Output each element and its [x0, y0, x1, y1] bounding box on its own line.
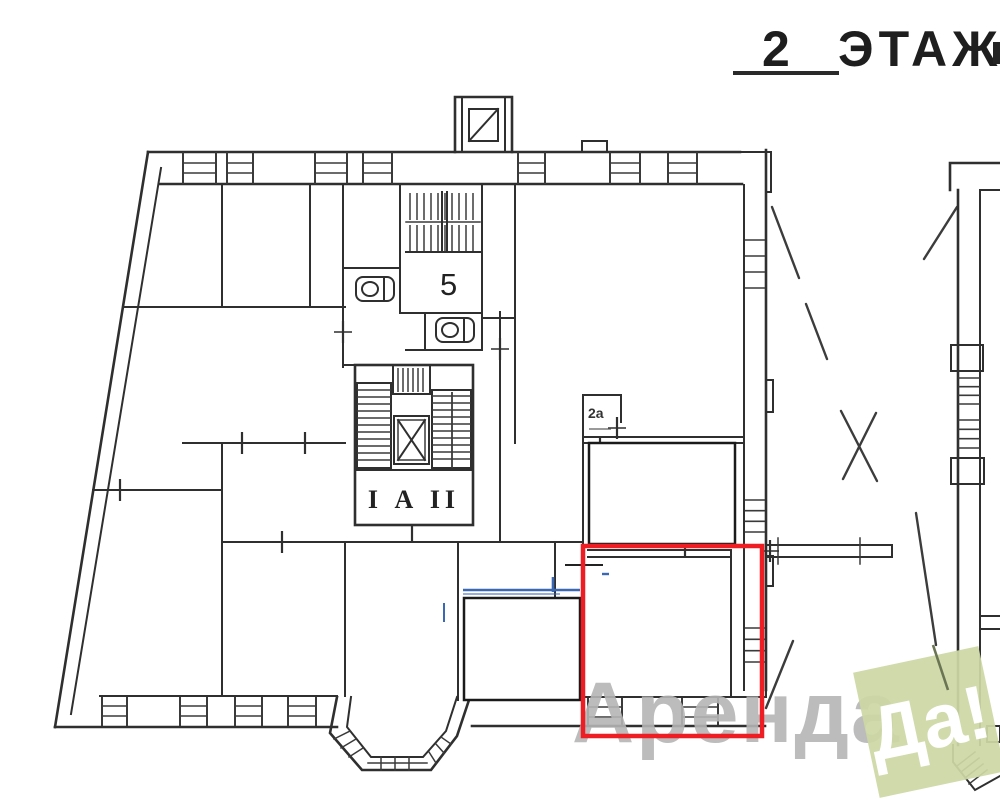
- bay-window: [330, 697, 470, 770]
- toilet-icon: [436, 318, 474, 342]
- right-wing-wall: [766, 538, 892, 564]
- floor-number-label: 2: [762, 21, 795, 77]
- floor-plan: 2 ЭТАЖ: [0, 0, 1000, 800]
- floor-word-label: ЭТАЖ: [838, 21, 1000, 77]
- white-overlay-box: [464, 598, 580, 700]
- fragment-windows: [958, 378, 980, 448]
- top-wall-windows: [183, 152, 697, 184]
- page-title: 2 ЭТАЖ: [733, 21, 1000, 77]
- title-underline: [733, 71, 839, 75]
- elevator-block: I А II: [355, 365, 473, 525]
- courtyard-lines: [766, 207, 957, 708]
- elevator-shaft-icon: [394, 416, 429, 464]
- scan-artifact: [993, 42, 1000, 64]
- left-stair-treads: [357, 390, 391, 460]
- scanned-floorplan-page: 2 ЭТАЖ: [0, 0, 1000, 800]
- elevator-unit-label: I А II: [368, 485, 460, 514]
- staircase-5: 5: [406, 192, 480, 302]
- vent-shaft-icon: [469, 109, 498, 141]
- white-overlay-box: [589, 443, 735, 544]
- building-outline: [55, 97, 773, 727]
- toilet-icon: [356, 277, 394, 301]
- vent-slats: [398, 368, 423, 392]
- staircase-label: 5: [440, 267, 457, 302]
- watermark-brand-text: Аренда: [572, 665, 901, 761]
- room-2a-label: 2а: [588, 405, 604, 421]
- right-stair-treads: [432, 392, 471, 468]
